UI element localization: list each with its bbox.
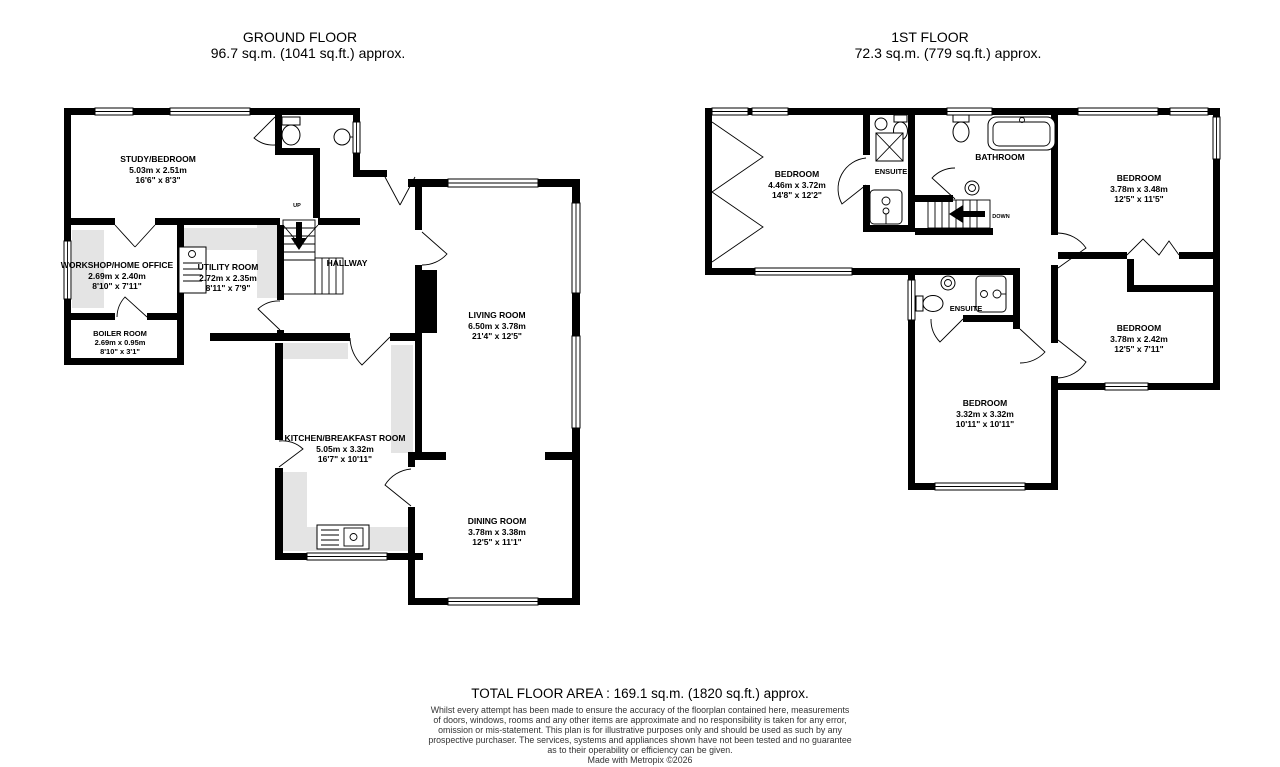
down-arrow-icon [949, 205, 985, 223]
room-label-hallway: HALLWAY [327, 258, 368, 269]
room-label-utility: UTILITY ROOM 2.72m x 2.35m 8'11" x 7'9" [198, 262, 259, 294]
room-label-boiler: BOILER ROOM 2.69m x 0.95m 8'10" x 3'1" [93, 329, 147, 356]
room-label-ensuite2: ENSUITE [950, 304, 983, 313]
first-floor-title: 1ST FLOOR [891, 29, 969, 45]
room-label-dining: DINING ROOM 3.78m x 3.38m 12'5" x 11'1" [468, 516, 527, 548]
room-label-kitchen: KITCHEN/BREAKFAST ROOM 5.05m x 3.32m 16'… [285, 433, 406, 465]
ensuite1-sink-icon [870, 190, 902, 224]
basin-icon [334, 129, 353, 145]
room-label-study-bedroom: STUDY/BEDROOM 5.03m x 2.51m 16'6" x 8'3" [120, 154, 196, 186]
room-label-bedroom3: BEDROOM 3.78m x 2.42m 12'5" x 7'11" [1110, 323, 1168, 355]
room-label-bedroom2: BEDROOM 3.78m x 3.48m 12'5" x 11'5" [1110, 173, 1168, 205]
room-label-bedroom1: BEDROOM 4.46m x 3.72m 14'8" x 12'2" [768, 169, 826, 201]
ground-floor-subtitle: 96.7 sq.m. (1041 sq.ft.) approx. [211, 45, 406, 61]
kitchen-sink-icon [317, 525, 369, 549]
shower-icon [876, 133, 903, 161]
stairs-down-label: DOWN [992, 214, 1009, 220]
disclaimer-line: prospective purchaser. The services, sys… [428, 735, 851, 745]
bathroom-basin-icon [965, 181, 979, 195]
total-floor-area: TOTAL FLOOR AREA : 169.1 sq.m. (1820 sq.… [471, 686, 808, 701]
bath-icon [988, 117, 1055, 150]
disclaimer-line: as to their operability or efficiency ca… [547, 745, 732, 755]
first-floor-subtitle: 72.3 sq.m. (779 sq.ft.) approx. [855, 45, 1042, 61]
room-label-ensuite1: ENSUITE [875, 167, 908, 176]
bathroom-toilet-icon [953, 115, 969, 142]
ground-floor-title: GROUND FLOOR [243, 29, 357, 45]
first-windows [712, 108, 1220, 490]
ensuite2-toilet-icon [916, 296, 943, 312]
first-floor-plan [695, 100, 1235, 500]
disclaimer-line: Whilst every attempt has been made to en… [431, 705, 850, 715]
ensuite1-basin-icon [875, 118, 887, 130]
room-label-bathroom: BATHROOM [975, 152, 1024, 163]
floorplan-page: GROUND FLOOR 96.7 sq.m. (1041 sq.ft.) ap… [0, 0, 1280, 767]
ensuite2-basin-icon [941, 276, 955, 290]
room-label-living: LIVING ROOM 6.50m x 3.78m 21'4" x 12'5" [468, 310, 526, 342]
room-label-bedroom4: BEDROOM 3.32m x 3.32m 10'11" x 10'11" [956, 398, 1014, 430]
first-walls [705, 108, 1220, 490]
disclaimer-line: omission or mis-statement. This plan is … [438, 725, 842, 735]
first-stairs [928, 200, 990, 228]
disclaimer-line: of doors, windows, rooms and any other i… [433, 715, 846, 725]
toilet-icon [282, 117, 300, 145]
made-with-line: Made with Metropix ©2026 [588, 755, 693, 765]
room-label-workshop: WORKSHOP/HOME OFFICE 2.69m x 2.40m 8'10"… [61, 260, 173, 292]
stairs-up-label: UP [293, 203, 301, 209]
